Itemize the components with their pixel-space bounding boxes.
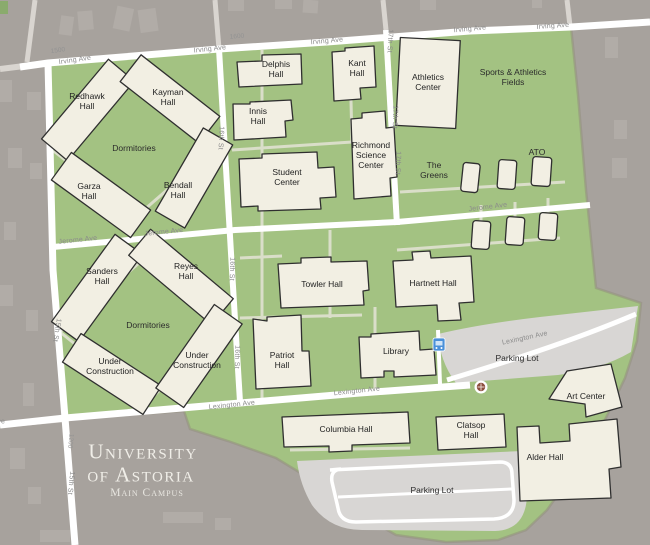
innis-hall bbox=[233, 100, 293, 140]
green-patch bbox=[0, 1, 8, 14]
clatsop-hall bbox=[436, 414, 506, 450]
jerome-house-1 bbox=[471, 220, 491, 249]
alder-hall bbox=[517, 419, 621, 501]
map-title-line1: University bbox=[88, 440, 197, 465]
roundabout-marker-icon bbox=[475, 381, 488, 394]
greens-house-2 bbox=[497, 159, 517, 189]
greens-house-3 bbox=[531, 156, 552, 186]
map-title-line2: of Astoria bbox=[87, 463, 194, 488]
campus-map[interactable]: Redhawk Hall Kayman Hall Garza Hall Bend… bbox=[0, 0, 650, 545]
athletics-center bbox=[396, 37, 461, 128]
map-title-line3: Main Campus bbox=[110, 487, 184, 499]
bus-stop-icon bbox=[433, 338, 445, 351]
jerome-house-2 bbox=[505, 216, 525, 245]
jerome-house-3 bbox=[538, 212, 558, 240]
greens-house-1 bbox=[460, 162, 480, 193]
towler-hall bbox=[278, 257, 369, 308]
